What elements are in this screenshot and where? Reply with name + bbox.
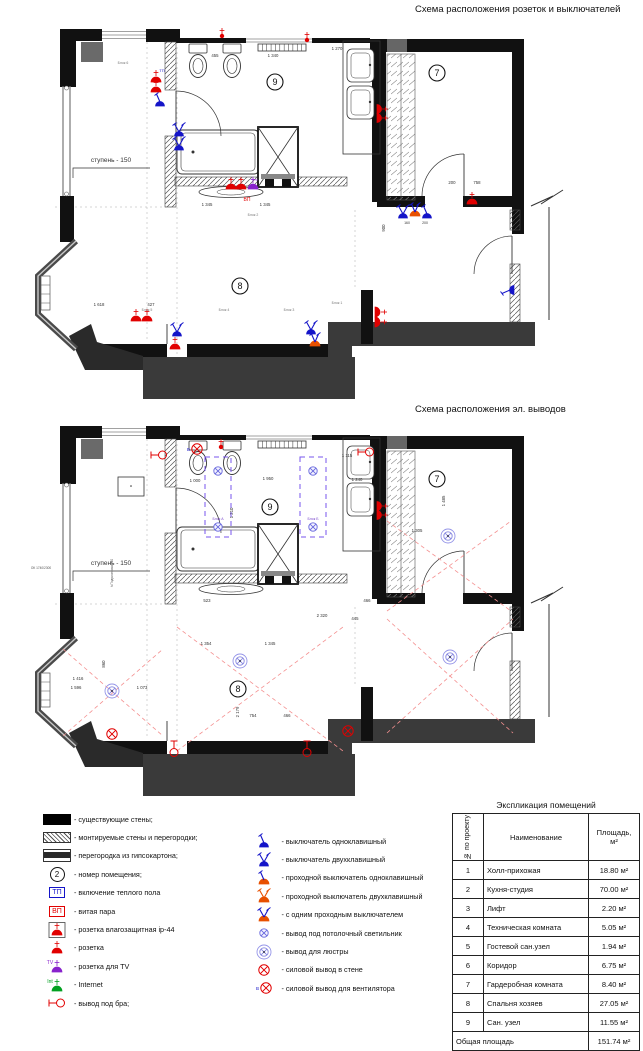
legend-column-right: - выключатель одноклавишный- выключатель… xyxy=(247,832,445,1012)
plan2-title: Схема расположения эл. выводов xyxy=(415,404,566,415)
legend-item: - вывод под бра; xyxy=(40,994,247,1012)
fan-output-icon: В xyxy=(247,979,281,997)
cell-name: Спальня хозяев xyxy=(484,994,589,1013)
cell-number: 4 xyxy=(453,918,484,937)
socket-ip44-icon xyxy=(40,921,74,939)
switch-1-icon xyxy=(247,832,281,850)
cell-area: 11.55 м² xyxy=(589,1013,640,1032)
chand-symbol xyxy=(233,654,247,668)
svg-text:7: 7 xyxy=(434,68,439,78)
cell-name: Техническая комната xyxy=(484,918,589,937)
pass-switch-2-icon xyxy=(247,887,281,905)
legend-item: - силовой вывод в стене xyxy=(247,961,445,979)
socket-internet-icon: Int xyxy=(40,976,74,994)
pwall-symbol xyxy=(107,729,117,739)
legend-item: - монтируемые стены и перегородки; xyxy=(40,828,247,846)
legend-item-label: - выключатель одноклавишный xyxy=(281,837,386,846)
dot-symbol xyxy=(220,28,225,38)
room-explication: Экспликация помещений № по проектуНаимен… xyxy=(452,800,640,1051)
vp-box-icon: ВП xyxy=(40,906,74,917)
legend-item-label: - проходной выключатель двухклавишный xyxy=(281,892,422,901)
floor-plan-sockets-switches: ступень - 1501 3404551 2701 3451 345ВПТП… xyxy=(25,24,565,404)
svg-text:TV: TV xyxy=(47,960,54,966)
legend-item-label: - монтируемые стены и перегородки; xyxy=(74,833,198,842)
plan-label: 1 000 xyxy=(190,478,201,483)
legend-item-label: - силовой вывод в стене xyxy=(281,965,362,974)
bra-symbol xyxy=(151,451,167,459)
plan-label: 900 xyxy=(381,224,386,232)
plan-label: 523 xyxy=(203,598,211,603)
svg-text:7: 7 xyxy=(434,474,439,484)
legend-item: Int- Internet xyxy=(40,976,247,994)
room-number-7: 7 xyxy=(429,65,445,81)
plan-label: TV xyxy=(254,178,258,182)
legend-item: - выключатель двухклавишный xyxy=(247,850,445,868)
legend-item: TV- розетка для TV xyxy=(40,957,247,975)
cell-area: 8.40 м² xyxy=(589,975,640,994)
tp-box-icon: ТП xyxy=(40,887,74,898)
plan-label: 1 618 xyxy=(94,302,105,307)
ceil-symbol xyxy=(214,523,222,531)
legend-item-label: - розетка для TV xyxy=(74,962,129,971)
room-number-7: 7 xyxy=(429,471,445,487)
legend-item-label: - вывод под потолочный светильник xyxy=(281,929,401,938)
plan-label: 160 xyxy=(404,221,410,225)
svg-text:Int: Int xyxy=(47,979,53,985)
plan-label: 1 485 xyxy=(441,495,446,506)
sw2-symbol xyxy=(305,321,318,335)
legend-item-label: - розетка xyxy=(74,943,104,952)
wall-mounted-icon xyxy=(40,832,74,843)
chand-symbol xyxy=(441,529,455,543)
svg-text:9: 9 xyxy=(267,502,272,512)
plan-label: 455 xyxy=(211,53,219,58)
plan-label: ступень - 150 xyxy=(91,157,132,164)
plan-label: Блок 5 xyxy=(142,308,153,312)
sw2-symbol xyxy=(171,323,184,337)
legend-item: - проходной выключатель одноклавишный xyxy=(247,869,445,887)
plan-label: 200 xyxy=(422,221,428,225)
table-row: 9Сан. узел11.55 м² xyxy=(453,1013,640,1032)
legend-item: - существующие стены; xyxy=(40,810,247,828)
plan-label: 1 115 xyxy=(342,453,353,458)
room-number-8: 8 xyxy=(232,278,248,294)
plan-label: 1 950 xyxy=(263,476,274,481)
ceiling-light-icon xyxy=(247,924,281,942)
plan-label: 1 270 xyxy=(332,46,343,51)
cell-number: 9 xyxy=(453,1013,484,1032)
table-title: Экспликация помещений xyxy=(452,800,640,810)
cell-area: 27.05 м² xyxy=(589,994,640,1013)
wall-existing-icon xyxy=(40,814,74,825)
cell-number: 7 xyxy=(453,975,484,994)
svg-text:В: В xyxy=(256,986,259,991)
plan-label: 758 xyxy=(473,180,481,185)
cell-area: 2.20 м² xyxy=(589,899,640,918)
cell-name: Гостевой сан.узел xyxy=(484,937,589,956)
wall-drywall-icon xyxy=(40,849,74,862)
plan-label: 2 179 xyxy=(235,706,240,717)
cell-area: 5.05 м² xyxy=(589,918,640,937)
ceil-symbol xyxy=(309,467,317,475)
legend-item: - выключатель одноклавишный xyxy=(247,832,445,850)
socket-symbol xyxy=(375,307,387,317)
total-label: Общая площадь xyxy=(453,1032,589,1051)
legend-item-label: - выключатель двухклавишный xyxy=(281,855,385,864)
cell-number: 3 xyxy=(453,899,484,918)
socket-symbol xyxy=(131,309,141,321)
plan-label: 1 354 xyxy=(201,641,212,646)
explication-table: № по проектуНаименованиеПлощадь, м²1Холл… xyxy=(452,813,640,1051)
legend: - существующие стены;- монтируемые стены… xyxy=(40,810,445,1012)
socket-symbol xyxy=(170,337,180,349)
ceil-symbol xyxy=(214,467,222,475)
plan-label: 1 345 xyxy=(265,641,276,646)
plan-label: ОК 1740/2300 xyxy=(31,566,52,570)
plan-label: 1 305 xyxy=(412,528,423,533)
plan-label: Блок 2 xyxy=(248,213,259,217)
plan-label: 1 240 xyxy=(352,477,363,482)
plan-label: Блок 3 xyxy=(284,308,295,312)
legend-item-label: - включение теплого пола xyxy=(74,888,160,897)
socket-icon xyxy=(40,939,74,957)
cell-number: 1 xyxy=(453,861,484,880)
sw1-symbol xyxy=(501,286,515,296)
legend-item: - проходной выключатель двухклавишный xyxy=(247,887,445,905)
svg-text:8: 8 xyxy=(237,281,242,291)
legend-item-label: - вывод под бра; xyxy=(74,999,129,1008)
plan-label: ВП xyxy=(244,197,251,203)
prox-symbol xyxy=(310,333,321,347)
plan-label: Блок 1 xyxy=(332,301,343,305)
col-header-name: Наименование xyxy=(484,814,589,861)
legend-item-label: - с одним проходным выключателем xyxy=(281,910,403,919)
legend-item-label: - номер помещения; xyxy=(74,870,142,879)
table-row: 8Спальня хозяев27.05 м² xyxy=(453,994,640,1013)
plan-label: 1 340 xyxy=(268,53,279,58)
room-number-8: 8 xyxy=(230,681,246,697)
plan-label: 466 xyxy=(363,598,371,603)
svg-text:9: 9 xyxy=(272,77,277,87)
legend-item: - вывод под потолочный светильник xyxy=(247,924,445,942)
table-row: 5Гостевой сан.узел1.94 м² xyxy=(453,937,640,956)
room-number-9: 9 xyxy=(262,499,278,515)
table-row: 2Кухня-студия70.00 м² xyxy=(453,880,640,899)
legend-item-label: - вывод для люстры xyxy=(281,947,348,956)
chand-symbol xyxy=(443,650,457,664)
sw1-symbol xyxy=(422,205,432,219)
plan-label: Блок 6 xyxy=(118,61,129,65)
cell-area: 1.94 м² xyxy=(589,937,640,956)
table-total-row: Общая площадь151.74 м² xyxy=(453,1032,640,1051)
plan-label: 754 xyxy=(249,713,257,718)
ceil-symbol xyxy=(309,523,317,531)
legend-item-label: - перегородка из гипсокартона; xyxy=(74,851,178,860)
plan-label: Блок А xyxy=(212,517,224,521)
plan-label: 1 345 xyxy=(202,202,213,207)
svg-text:В: В xyxy=(187,447,190,452)
legend-item: В- силовой вывод для вентилятора xyxy=(247,979,445,997)
power-wall-icon xyxy=(247,961,281,979)
table-row: 6Коридор6.75 м² xyxy=(453,956,640,975)
room-number-icon: 2 xyxy=(40,867,74,882)
legend-item: ВП- витая пара xyxy=(40,902,247,920)
plan-label: 860 xyxy=(101,660,106,668)
cell-number: 6 xyxy=(453,956,484,975)
plan-label: 2 320 xyxy=(317,613,328,618)
plan-label: 1 345 xyxy=(260,202,271,207)
room-number-9: 9 xyxy=(267,74,283,90)
legend-item: ТП- включение теплого пола xyxy=(40,884,247,902)
plan-label: 1 416 xyxy=(73,676,84,681)
plan-label: 466 xyxy=(283,713,291,718)
plan-label: Блок 4 xyxy=(219,308,230,312)
plan1-title: Схема расположения розеток и выключателе… xyxy=(415,4,621,15)
legend-item: - перегородка из гипсокартона; xyxy=(40,847,247,865)
total-area: 151.74 м² xyxy=(589,1032,640,1051)
cell-area: 70.00 м² xyxy=(589,880,640,899)
cell-number: 8 xyxy=(453,994,484,1013)
plan-label: 1 210 xyxy=(229,507,234,518)
cell-area: 18.80 м² xyxy=(589,861,640,880)
legend-item-label: - витая пара xyxy=(74,907,115,916)
cell-name: Лифт xyxy=(484,899,589,918)
plan-label: h Подоконника 760 xyxy=(110,559,114,587)
legend-item: - с одним проходным выключателем xyxy=(247,906,445,924)
plan-label: 445 xyxy=(351,616,359,621)
cell-name: Кухня-студия xyxy=(484,880,589,899)
cell-name: Сан. узел xyxy=(484,1013,589,1032)
floor-plan-electrical-outputs: Вступень - 1501 0001 9501 1151 2401 2101… xyxy=(25,421,565,801)
plan-label: Блок Б xyxy=(307,517,319,521)
svg-text:8: 8 xyxy=(235,684,240,694)
legend-item: - розетка влагозащитная ip-44 xyxy=(40,920,247,938)
plan-label: 427 xyxy=(147,302,155,307)
plan-label: ТП xyxy=(159,68,164,73)
legend-column-left: - существующие стены;- монтируемые стены… xyxy=(40,810,247,1012)
cell-name: Холл-прихожая xyxy=(484,861,589,880)
legend-item-label: - Internet xyxy=(74,980,103,989)
cell-name: Гардеробная комната xyxy=(484,975,589,994)
legend-item: - вывод для люстры xyxy=(247,942,445,960)
cell-number: 2 xyxy=(453,880,484,899)
socket-tv-icon: TV xyxy=(40,957,74,975)
col-header-area: Площадь, м² xyxy=(589,814,640,861)
table-row: 3Лифт2.20 м² xyxy=(453,899,640,918)
cell-name: Коридор xyxy=(484,956,589,975)
switch-2-icon xyxy=(247,851,281,869)
switch-mixed-icon xyxy=(247,906,281,924)
pass-switch-1-icon xyxy=(247,869,281,887)
plan-label: 1 073 xyxy=(137,685,148,690)
plan-label: 1 596 xyxy=(71,685,82,690)
plan-label: 200 xyxy=(448,180,456,185)
legend-item-label: - розетка влагозащитная ip-44 xyxy=(74,925,174,934)
legend-item: 2- номер помещения; xyxy=(40,865,247,883)
legend-item-label: - проходной выключатель одноклавишный xyxy=(281,873,423,882)
sw1-symbol xyxy=(155,93,165,107)
legend-item: - розетка xyxy=(40,939,247,957)
chandelier-icon xyxy=(247,943,281,961)
cell-area: 6.75 м² xyxy=(589,956,640,975)
bra-output-icon xyxy=(40,994,74,1012)
cell-number: 5 xyxy=(453,937,484,956)
table-row: 7Гардеробная комната8.40 м² xyxy=(453,975,640,994)
legend-item-label: - силовой вывод для вентилятора xyxy=(281,984,394,993)
col-header-number: № по проекту xyxy=(453,814,484,861)
chand-symbol xyxy=(105,684,119,698)
table-row: 1Холл-прихожая18.80 м² xyxy=(453,861,640,880)
table-row: 4Техническая комната5.05 м² xyxy=(453,918,640,937)
legend-item-label: - существующие стены; xyxy=(74,815,153,824)
